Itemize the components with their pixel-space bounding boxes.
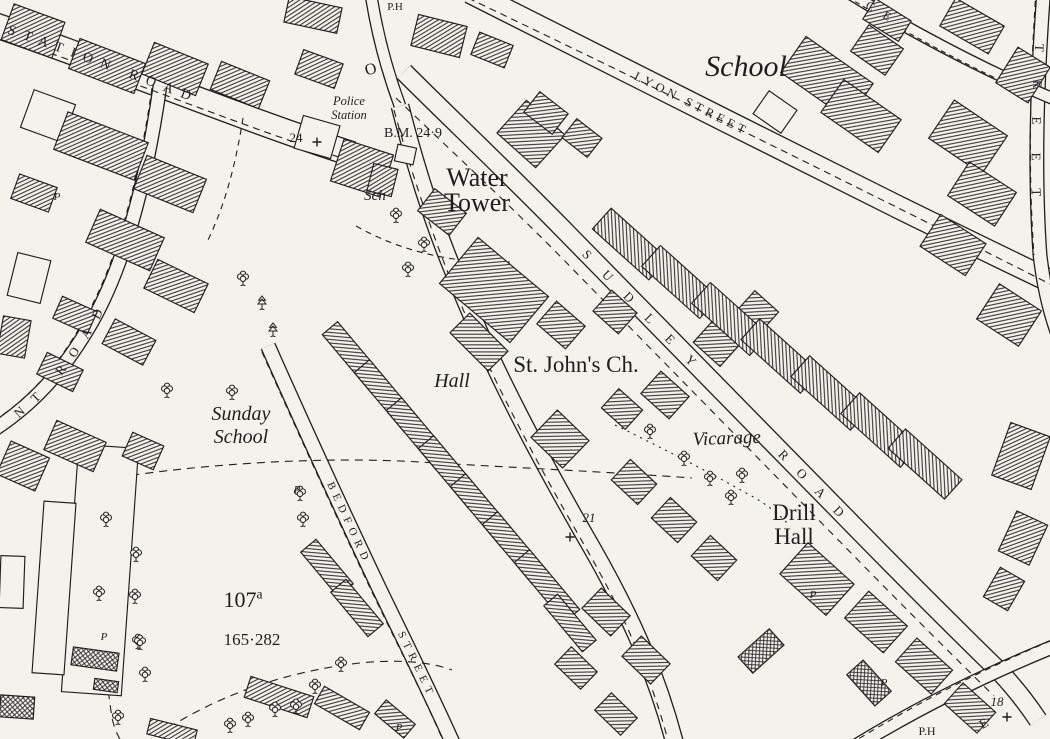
p-marker-label: P xyxy=(53,191,61,203)
benchmark-label: B.M. 24·9 xyxy=(384,126,442,141)
number-21: 21 xyxy=(583,510,596,525)
number-24: 24 xyxy=(290,130,304,145)
number-18-line: 18 xyxy=(991,694,1005,709)
p-marker-label: P xyxy=(395,722,403,734)
building-base xyxy=(0,556,25,609)
p-marker-label: P xyxy=(293,484,301,496)
st-johns-ch-label: St. John's Ch. xyxy=(513,352,639,377)
parcel-number-label-sup: a xyxy=(256,587,262,602)
police-station-label-line: Police xyxy=(332,94,365,108)
police-station-label: PoliceStation xyxy=(331,94,366,122)
drill-hall-label: DrillHall xyxy=(772,500,815,549)
p-marker-label: P xyxy=(809,589,817,601)
vicarage-label-line: Vicarage xyxy=(692,427,761,450)
number-21-line: 21 xyxy=(583,510,596,525)
water-tower-label: WaterTower xyxy=(444,163,510,217)
benchmark-label-line: B.M. 24·9 xyxy=(384,126,442,141)
sunday-school-label-line: Sunday xyxy=(212,403,271,425)
building-outline xyxy=(0,695,35,719)
sch-label: Sch xyxy=(364,188,386,204)
map-viewport: PPPPPPSTATION ROADLYON STREETSUDLEYROADB… xyxy=(0,0,1050,739)
ph-bottom-label: P.H xyxy=(918,724,935,738)
drill-hall-label-line: Hall xyxy=(774,524,814,549)
parcel-area-label: 165·282 xyxy=(224,630,281,649)
school-label: School xyxy=(705,50,787,83)
building xyxy=(394,144,416,165)
ph-bottom-label-line: P.H xyxy=(918,724,935,738)
building xyxy=(0,695,35,719)
ph-top-label: P.H xyxy=(387,1,403,13)
vicarage-label: Vicarage xyxy=(692,427,761,450)
p-marker-label: P xyxy=(880,677,888,689)
water-tower-label-line: Tower xyxy=(444,188,510,217)
st-johns-ch-label-line: St. John's Ch. xyxy=(513,352,639,377)
parcel-number-label-line: 107 xyxy=(223,587,256,612)
hall-label: Hall xyxy=(433,370,470,392)
hall-label-line: Hall xyxy=(433,370,470,392)
number-18: 18 xyxy=(991,694,1005,709)
building xyxy=(0,556,25,609)
drill-hall-label-line: Drill xyxy=(772,500,815,525)
parcel-area-label-line: 165·282 xyxy=(224,630,281,649)
police-station-label-line: Station xyxy=(331,108,366,122)
sunday-school-label: SundaySchool xyxy=(212,403,271,448)
school-label-line: School xyxy=(705,50,787,83)
os-map-canvas: PPPPPPSTATION ROADLYON STREETSUDLEYROADB… xyxy=(0,0,1050,739)
ph-top-label-line: P.H xyxy=(387,1,403,13)
sch-label-line: Sch xyxy=(364,188,386,204)
p-marker-label: P xyxy=(100,631,108,643)
number-24-line: 24 xyxy=(290,130,304,145)
sunday-school-label-line: School xyxy=(214,426,269,448)
